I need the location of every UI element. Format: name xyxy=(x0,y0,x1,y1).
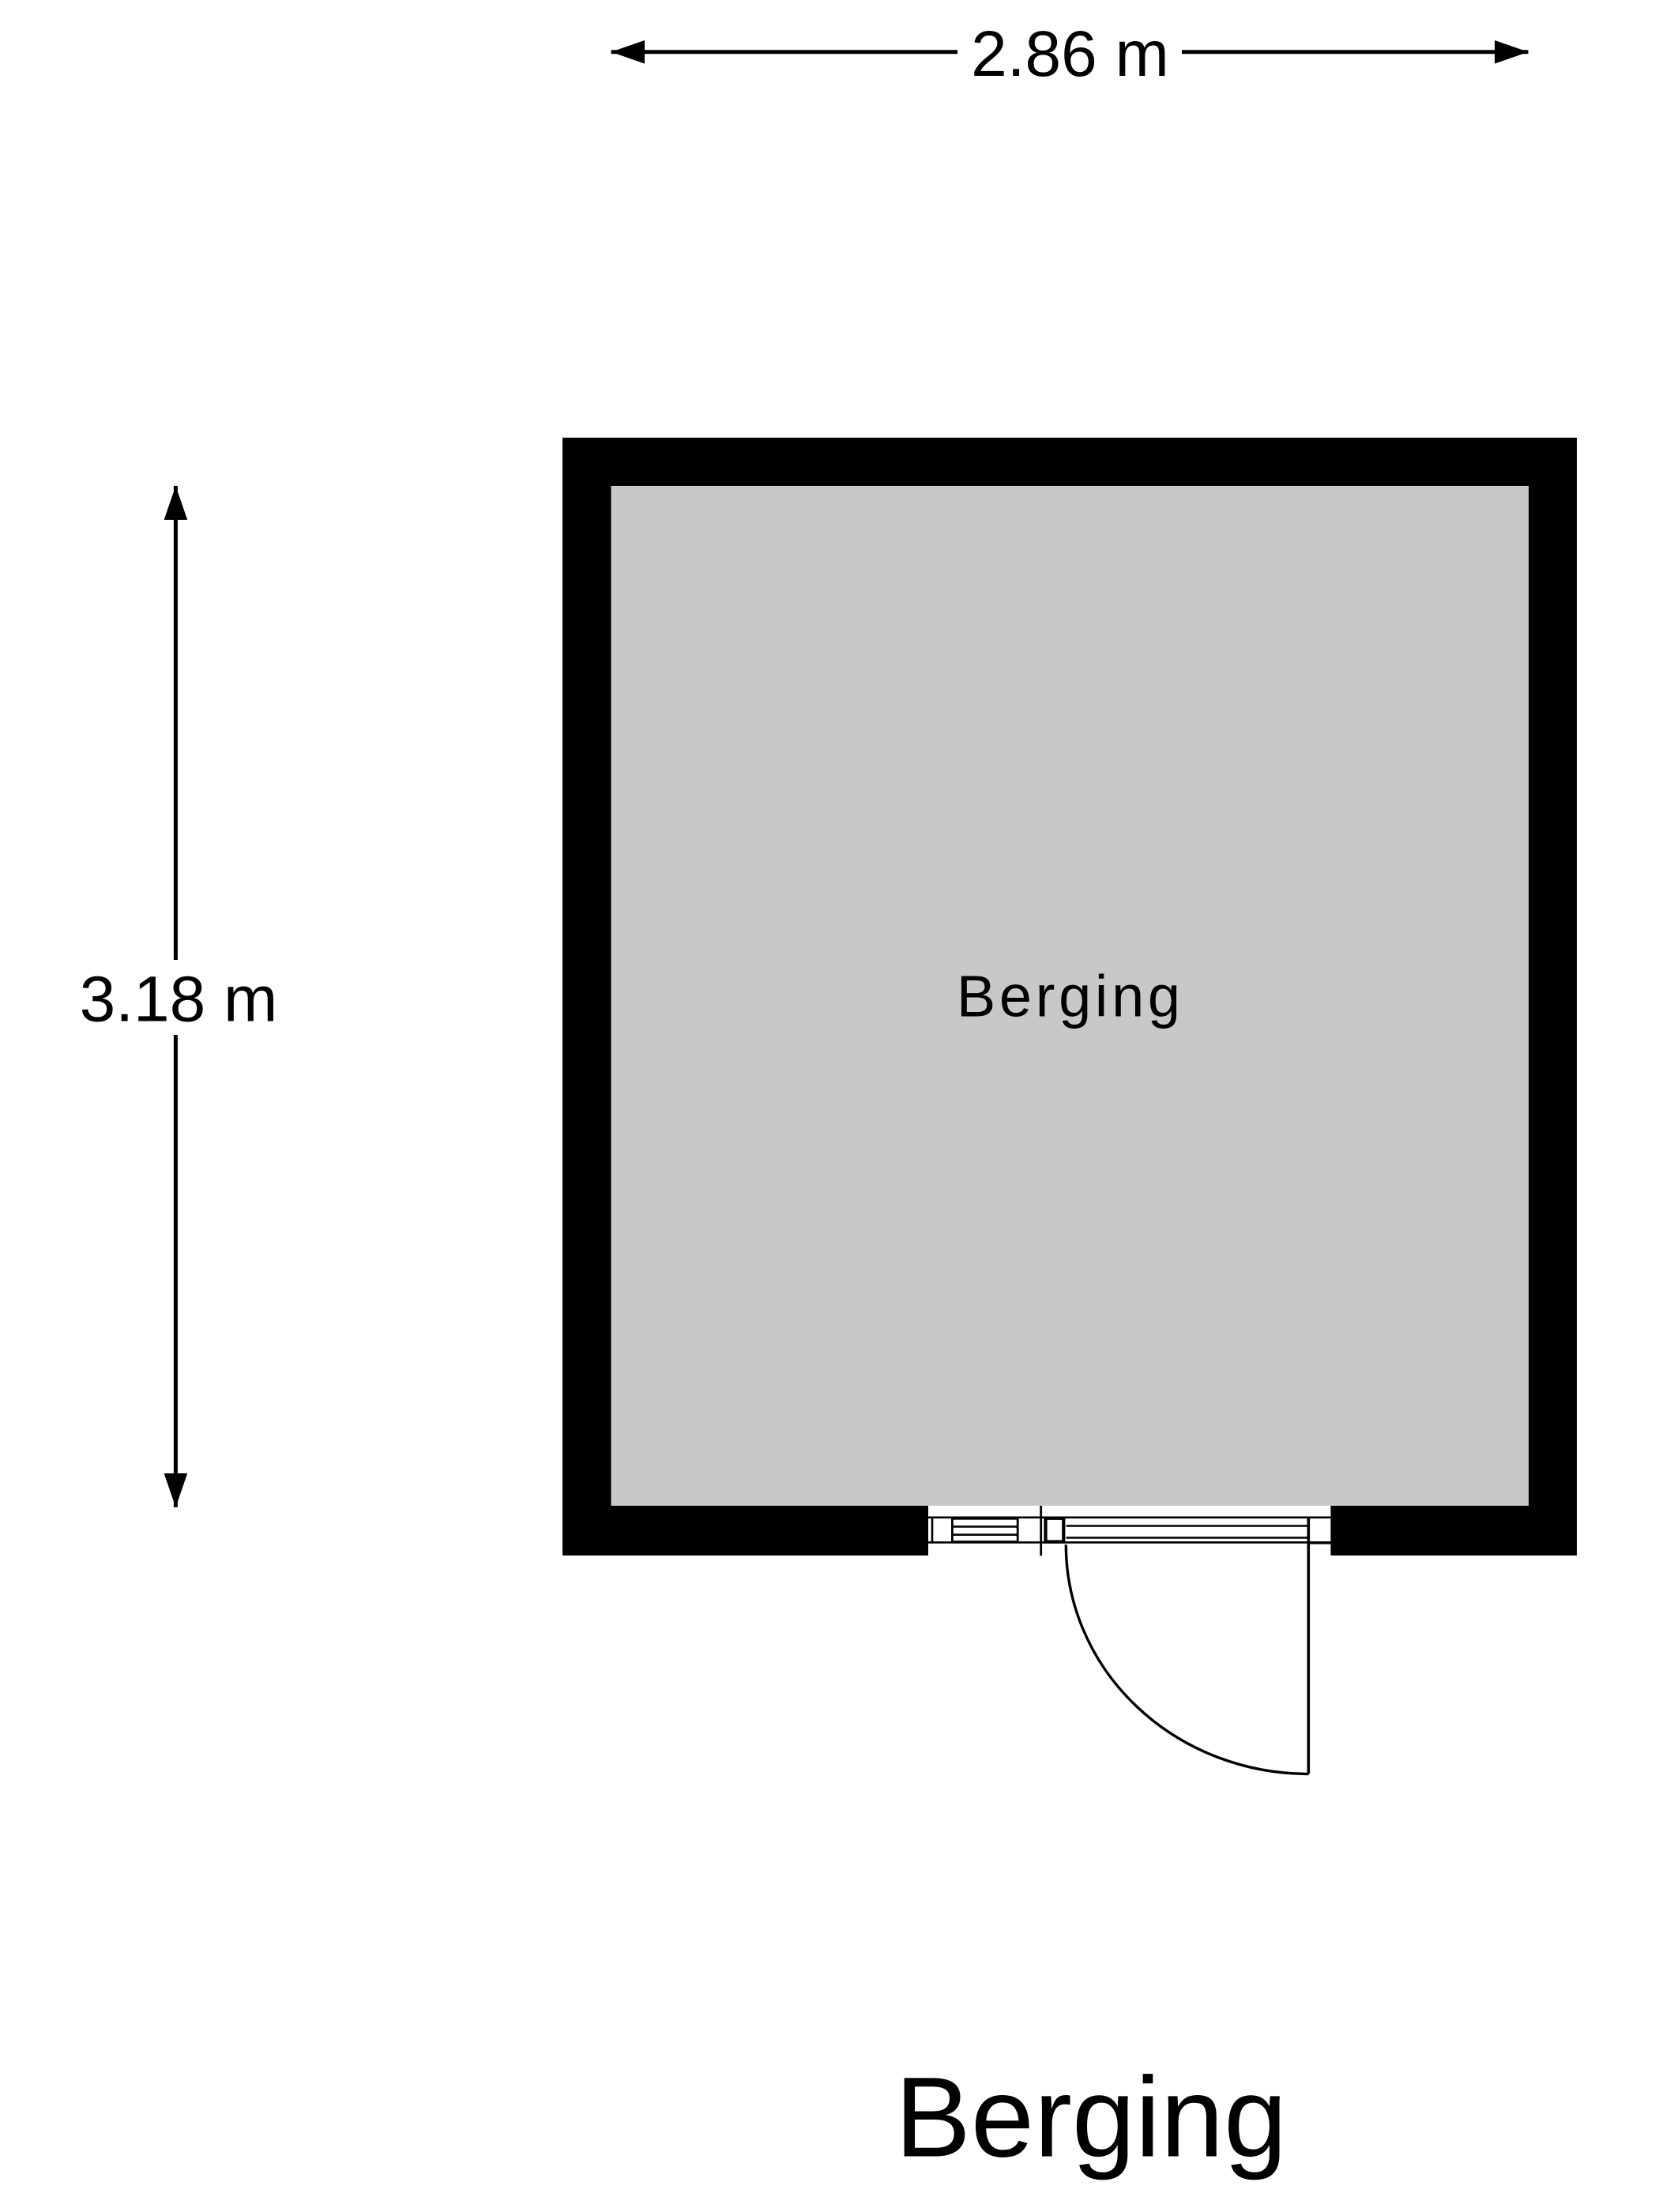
svg-text:Berging: Berging xyxy=(957,963,1184,1029)
svg-text:2.86 m: 2.86 m xyxy=(971,18,1169,90)
svg-text:Berging: Berging xyxy=(895,2054,1287,2181)
svg-text:3.18 m: 3.18 m xyxy=(80,964,278,1036)
